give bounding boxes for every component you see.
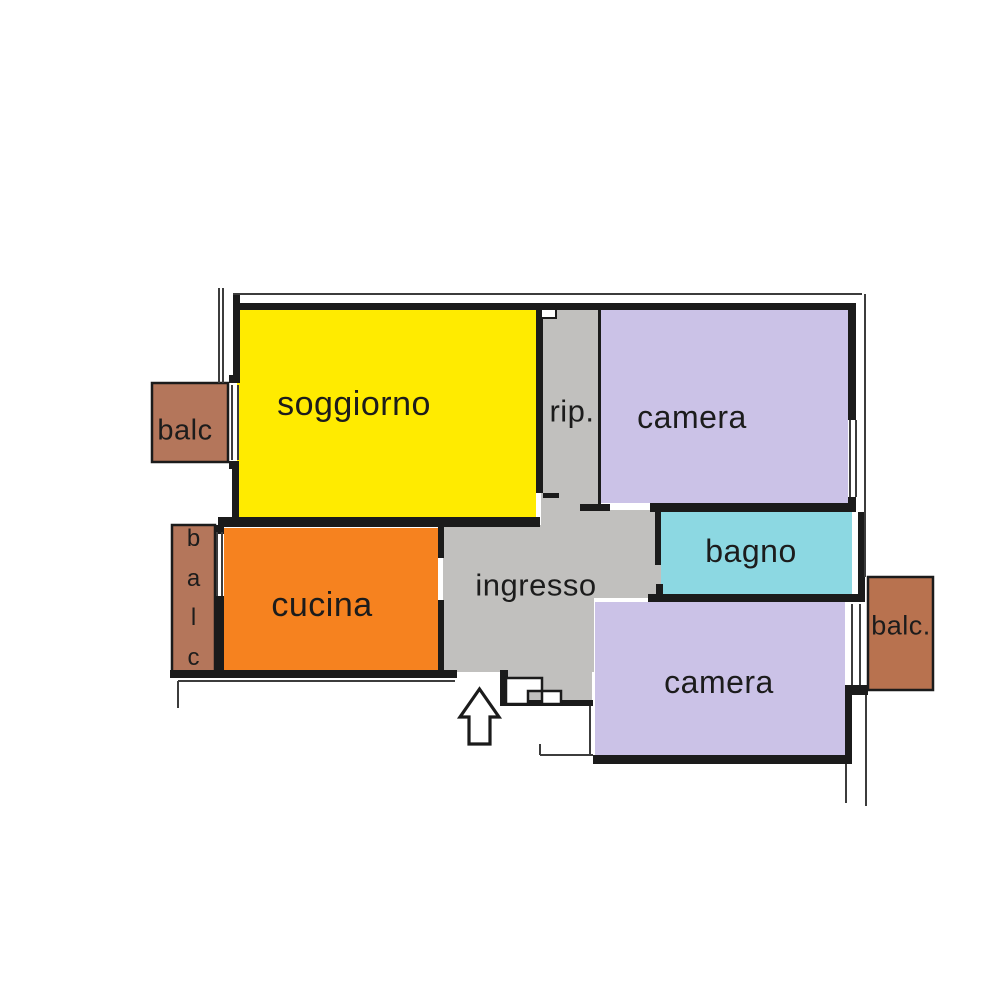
wall-segment (650, 503, 856, 512)
wall-segment (218, 517, 540, 527)
outline-bottom-left (178, 681, 455, 708)
door-jamb (543, 493, 559, 498)
label-balcony-top-left: balc (157, 417, 212, 446)
wall-segment-bottom (593, 755, 852, 764)
wall-segment (848, 497, 856, 512)
balcony-left-letter: l (191, 606, 196, 630)
wall-segment (229, 375, 239, 383)
wall-segment (438, 600, 444, 672)
wall-segment (233, 293, 240, 383)
floor-plan: soggiorno rip. camera balc cucina ingres… (0, 0, 994, 994)
stair-step (542, 691, 561, 704)
room-label-cucina: cucina (271, 588, 372, 622)
wall-segment (536, 309, 543, 493)
room-label-camera-bottom: camera (664, 666, 774, 698)
wall-segment (438, 527, 444, 558)
wall-segment (580, 504, 610, 511)
window-cucina-balcony (217, 532, 222, 596)
window-soggiorno-balcony (232, 385, 238, 460)
wall-segment-bottom (170, 670, 457, 678)
label-balcony-left: b a l c (172, 527, 215, 670)
outline-left-double (219, 288, 223, 383)
room-label-camera-top: camera (637, 401, 747, 433)
balcony-left-letter: c (188, 646, 200, 670)
wall-segment (232, 462, 239, 525)
balcony-left-letter: b (187, 527, 200, 551)
wall-segment (848, 303, 856, 420)
window-camera-bottom-balcony (852, 604, 860, 685)
room-label-bagno: bagno (705, 535, 796, 567)
balcony-left-letter: a (187, 567, 200, 591)
label-balcony-right: balc. (871, 613, 931, 640)
wall-segment (655, 512, 661, 565)
floor-plan-drawing (0, 0, 994, 994)
wall-segment (858, 512, 865, 597)
room-label-ingresso: ingresso (475, 570, 596, 601)
wall-segment (598, 310, 601, 510)
outline-bottom-center (540, 744, 593, 755)
wall-segment (215, 596, 224, 672)
room-label-rip: rip. (549, 396, 594, 427)
room-label-soggiorno: soggiorno (277, 387, 431, 421)
wall-segment (845, 690, 852, 764)
wall-segment (648, 594, 865, 602)
wall-notch (541, 309, 556, 318)
window-camera-top (850, 420, 856, 497)
entrance-arrow-icon (460, 689, 499, 744)
